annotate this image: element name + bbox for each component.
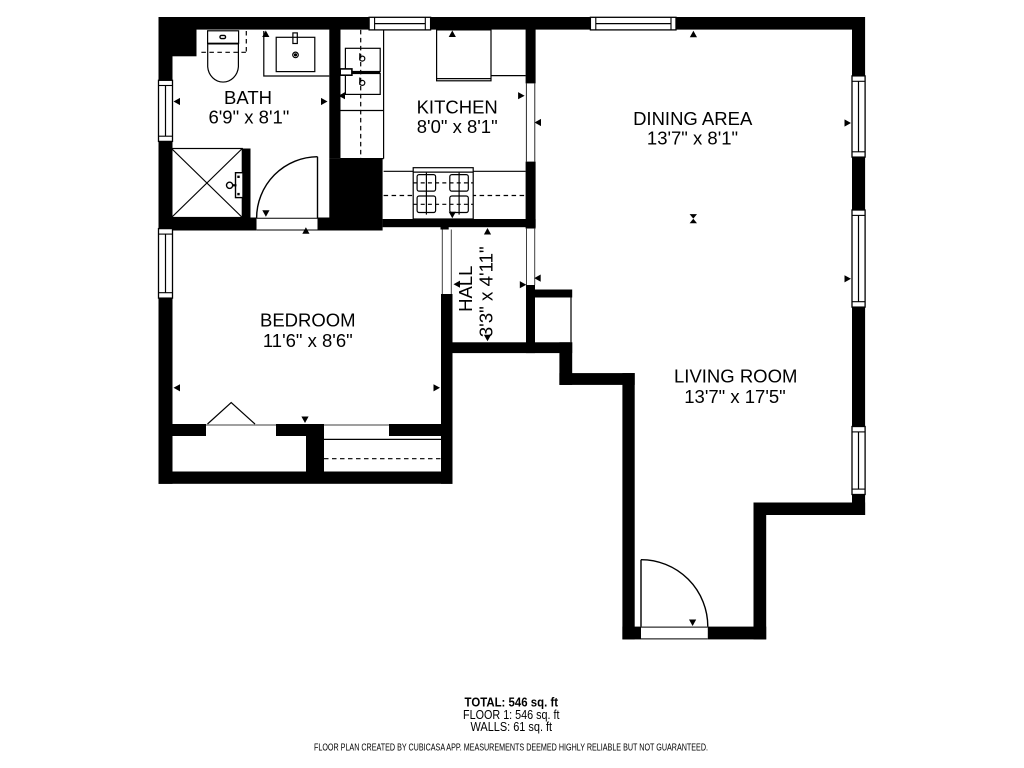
svg-text:BATH: BATH [224, 87, 272, 108]
svg-text:11'6" x 8'6": 11'6" x 8'6" [263, 330, 353, 351]
svg-text:WALLS: 61 sq. ft: WALLS: 61 sq. ft [471, 720, 553, 734]
svg-text:BEDROOM: BEDROOM [260, 309, 356, 330]
svg-text:KITCHEN: KITCHEN [417, 97, 498, 118]
svg-text:HALL: HALL [455, 266, 476, 312]
svg-text:8'0" x 8'1": 8'0" x 8'1" [417, 116, 498, 137]
svg-text:6'9" x 8'1": 6'9" x 8'1" [208, 107, 289, 128]
svg-text:LIVING ROOM: LIVING ROOM [674, 366, 797, 387]
svg-text:3'3" x 4'11": 3'3" x 4'11" [475, 246, 496, 337]
svg-text:DINING AREA: DINING AREA [633, 108, 753, 129]
svg-text:13'7" x 8'1": 13'7" x 8'1" [647, 128, 738, 149]
svg-text:13'7" x 17'5": 13'7" x 17'5" [684, 386, 785, 407]
svg-text:FLOOR PLAN CREATED BY CUBICASA: FLOOR PLAN CREATED BY CUBICASA APP. MEAS… [314, 743, 708, 754]
